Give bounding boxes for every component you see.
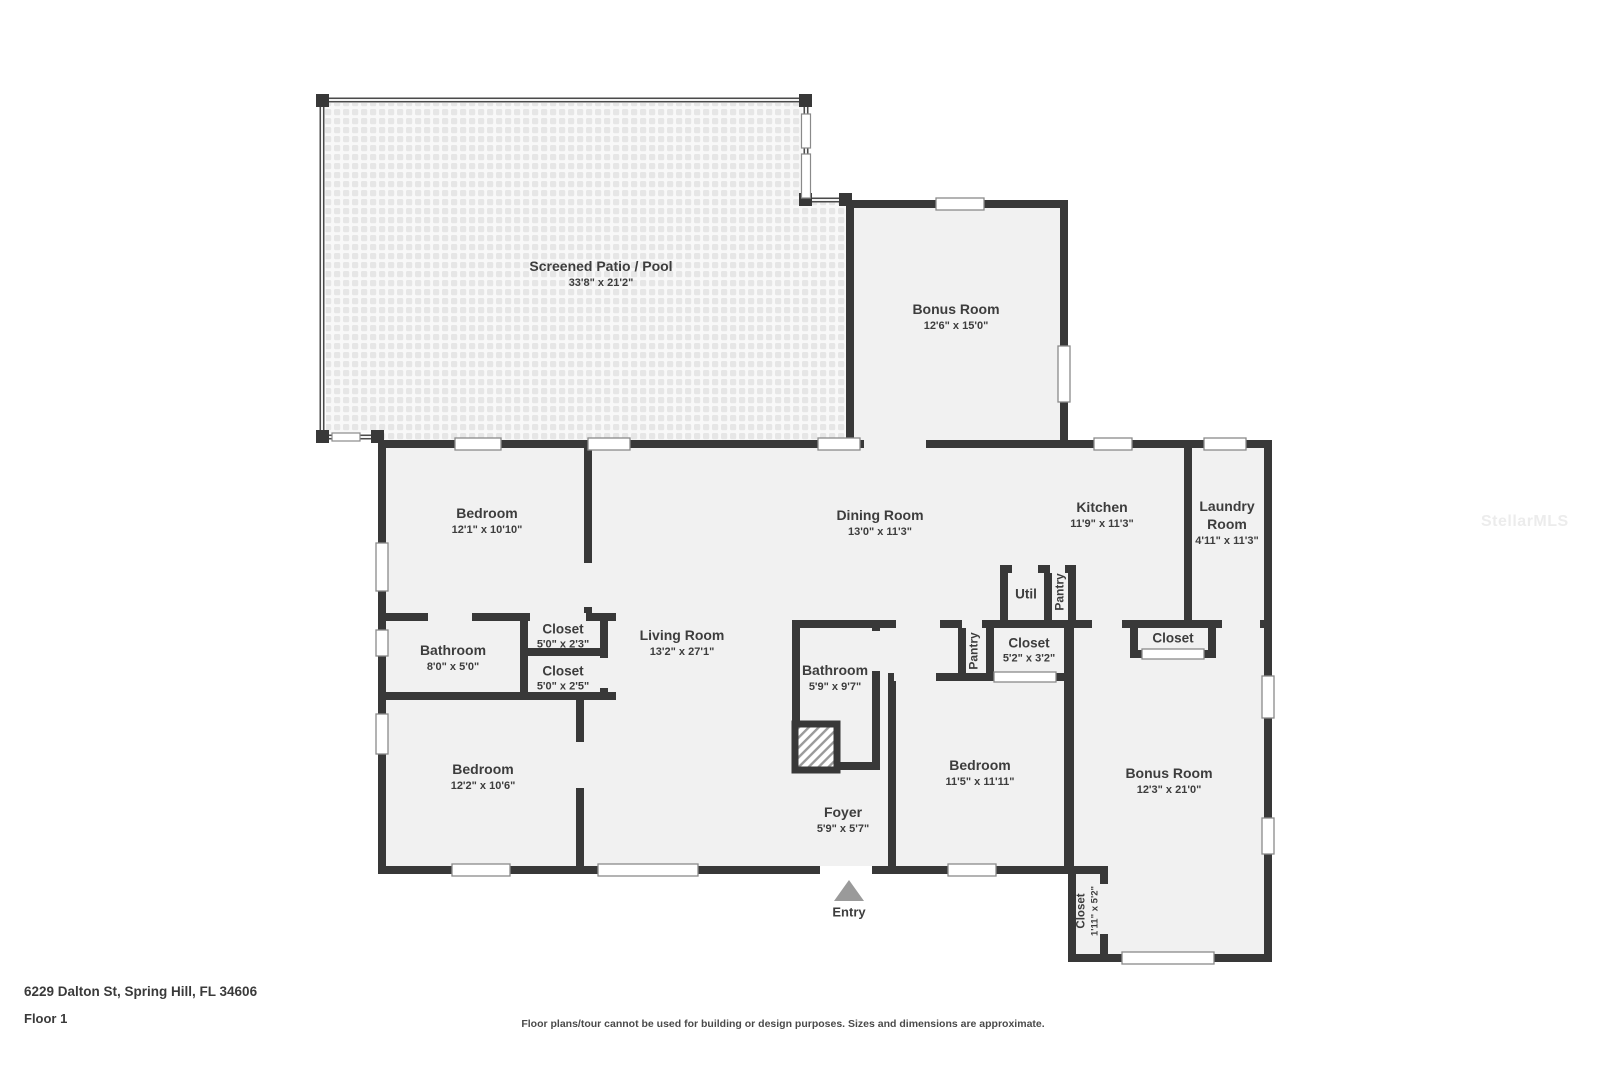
patio-area [316,94,852,443]
entry-arrow-icon [834,880,864,901]
floor-label: Floor 1 [24,1011,67,1026]
entry-label: Entry [832,905,865,920]
floorplan-canvas: Screened Patio / Pool 33'8" x 21'2" Bonu… [0,0,1600,1066]
shower-hatch [795,724,837,770]
stellar-mls-watermark: StellarMLS [1481,513,1569,531]
property-address: 6229 Dalton St, Spring Hill, FL 34606 [24,984,257,999]
disclaimer-text: Floor plans/tour cannot be used for buil… [521,1018,1044,1030]
floorplan-drawing [0,0,1600,1066]
